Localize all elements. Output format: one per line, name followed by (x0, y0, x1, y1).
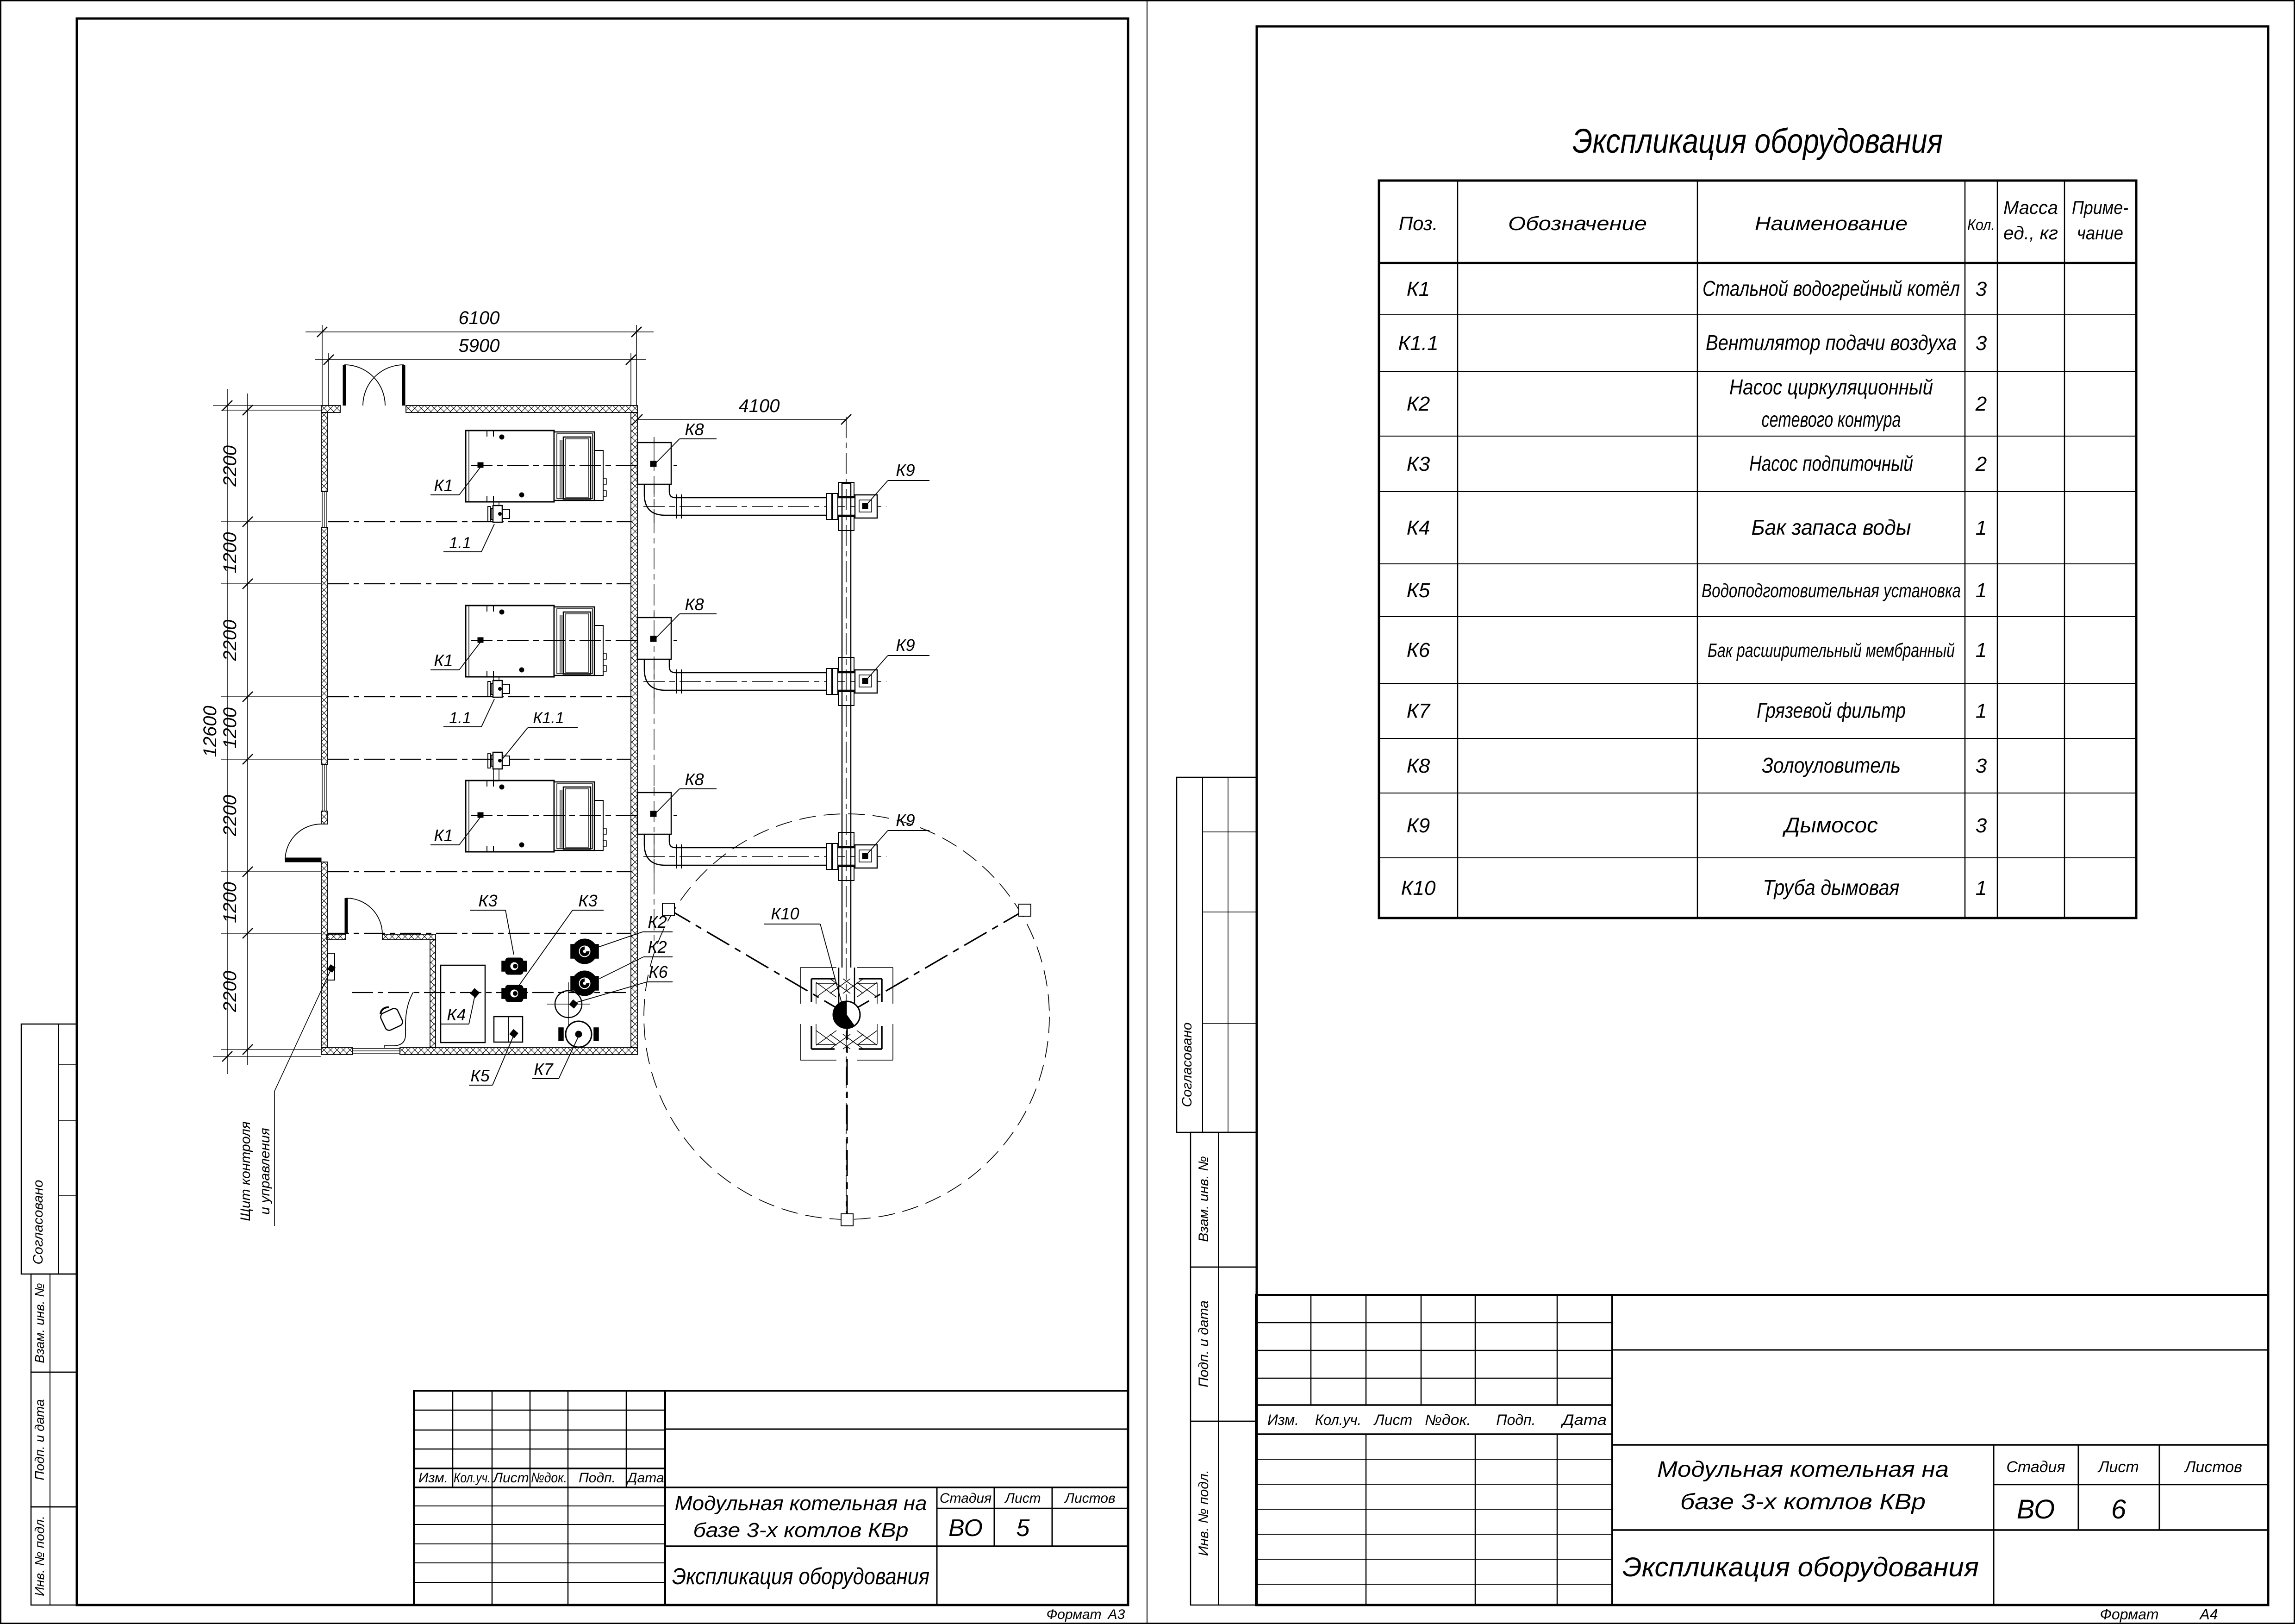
svg-text:Формат: Формат (1046, 1607, 1101, 1622)
svg-text:ВО: ВО (948, 1515, 983, 1542)
svg-text:1.1: 1.1 (449, 534, 471, 552)
svg-text:К10: К10 (1401, 877, 1436, 899)
svg-text:3: 3 (1976, 814, 1987, 837)
svg-text:К4: К4 (447, 1005, 466, 1024)
svg-text:Согласовано: Согласовано (31, 1180, 46, 1265)
svg-text:А4: А4 (2199, 1606, 2218, 1623)
svg-text:Взам. инв. №: Взам. инв. № (32, 1283, 47, 1363)
svg-text:1: 1 (1976, 639, 1987, 662)
svg-text:Экспликация оборудования: Экспликация оборудования (1622, 1552, 1979, 1582)
svg-text:К3: К3 (578, 891, 597, 910)
svg-text:К7: К7 (534, 1060, 554, 1079)
svg-text:Листов: Листов (2184, 1458, 2242, 1476)
svg-text:базе 3-х котлов КВр: базе 3-х котлов КВр (693, 1519, 909, 1542)
svg-text:№док.: №док. (1425, 1412, 1471, 1428)
svg-text:Бак расширительный мембранный: Бак расширительный мембранный (1708, 639, 1955, 661)
svg-text:5900: 5900 (459, 336, 500, 356)
svg-text:6100: 6100 (459, 308, 500, 328)
svg-text:Грязевой фильтр: Грязевой фильтр (1757, 699, 1906, 723)
svg-text:Изм.: Изм. (1267, 1412, 1299, 1428)
svg-text:К8: К8 (1407, 755, 1430, 777)
svg-text:1: 1 (1976, 579, 1987, 602)
svg-text:3: 3 (1976, 278, 1987, 300)
svg-text:К5: К5 (1407, 579, 1430, 602)
svg-text:Подп.: Подп. (579, 1470, 616, 1486)
svg-text:12600: 12600 (200, 706, 220, 757)
svg-text:К2: К2 (1407, 393, 1430, 415)
svg-text:Кол.: Кол. (1967, 216, 1995, 234)
svg-text:2200: 2200 (220, 620, 240, 662)
svg-text:Водоподготовительная установка: Водоподготовительная установка (1702, 580, 1961, 601)
svg-text:1: 1 (1976, 700, 1987, 723)
svg-text:1: 1 (1976, 877, 1987, 899)
svg-text:К3: К3 (478, 891, 497, 910)
svg-text:1: 1 (1976, 517, 1987, 539)
svg-text:базе 3-х котлов КВр: базе 3-х котлов КВр (1680, 1490, 1926, 1514)
svg-text:5: 5 (1017, 1515, 1030, 1542)
svg-text:2200: 2200 (220, 971, 240, 1012)
svg-text:Лист: Лист (2097, 1458, 2139, 1476)
svg-text:Дата: Дата (1561, 1412, 1607, 1428)
svg-text:2: 2 (1975, 453, 1987, 475)
svg-text:К1.1: К1.1 (533, 709, 564, 727)
svg-text:К7: К7 (1407, 700, 1431, 723)
svg-text:№док.: №док. (531, 1470, 567, 1486)
svg-text:2200: 2200 (220, 445, 240, 487)
svg-text:Золоуловитель: Золоуловитель (1762, 753, 1901, 777)
svg-text:Подп.: Подп. (1496, 1412, 1535, 1428)
svg-text:К6: К6 (1407, 639, 1430, 662)
svg-text:Лист: Лист (1004, 1491, 1041, 1506)
svg-text:Насос циркуляционный: Насос циркуляционный (1729, 375, 1933, 399)
svg-text:3: 3 (1976, 332, 1987, 355)
svg-text:сетевого контура: сетевого контура (1762, 407, 1901, 431)
svg-text:ВО: ВО (2017, 1494, 2055, 1524)
svg-text:Изм.: Изм. (418, 1470, 448, 1486)
svg-text:Стадия: Стадия (2006, 1458, 2065, 1476)
svg-text:Инв. № подл.: Инв. № подл. (32, 1516, 47, 1596)
svg-text:Листов: Листов (1064, 1491, 1115, 1506)
svg-text:Подп. и дата: Подп. и дата (1196, 1300, 1211, 1387)
svg-text:К1: К1 (1407, 278, 1430, 300)
svg-text:Модульная котельная на: Модульная котельная на (675, 1492, 927, 1515)
svg-text:Бак запаса воды: Бак запаса воды (1752, 515, 1911, 539)
svg-text:Инв. № подл.: Инв. № подл. (1196, 1470, 1211, 1556)
svg-text:К4: К4 (1407, 517, 1430, 539)
svg-text:Поз.: Поз. (1399, 212, 1438, 234)
svg-text:Лист: Лист (1373, 1412, 1412, 1428)
svg-text:К1.1: К1.1 (1398, 332, 1438, 355)
svg-text:Вентилятор подачи воздуха: Вентилятор подачи воздуха (1706, 331, 1957, 355)
svg-text:Наименование: Наименование (1755, 212, 1908, 234)
svg-text:Приме-: Приме- (2072, 198, 2128, 218)
svg-text:чание: чание (2077, 223, 2123, 244)
svg-text:Масса: Масса (2003, 198, 2058, 218)
svg-text:4100: 4100 (739, 396, 780, 416)
svg-text:2200: 2200 (220, 795, 240, 837)
svg-text:Обозначение: Обозначение (1508, 212, 1647, 234)
svg-text:Лист: Лист (492, 1470, 529, 1486)
svg-text:Экспликация оборудования: Экспликация оборудования (672, 1563, 929, 1589)
svg-text:К5: К5 (470, 1066, 490, 1085)
svg-text:К3: К3 (1407, 453, 1430, 475)
svg-text:1200: 1200 (220, 882, 240, 923)
svg-text:Насос подпиточный: Насос подпиточный (1749, 451, 1913, 475)
svg-text:Взам. инв. №: Взам. инв. № (1196, 1156, 1211, 1242)
svg-text:Согласовано: Согласовано (1179, 1023, 1195, 1107)
svg-text:Щит контроля: Щит контроля (238, 1121, 253, 1221)
svg-text:Кол.уч.: Кол.уч. (454, 1470, 491, 1486)
svg-text:Дата: Дата (626, 1470, 664, 1486)
svg-text:Стадия: Стадия (940, 1491, 992, 1506)
svg-text:К6: К6 (649, 962, 668, 981)
svg-text:К10: К10 (771, 904, 799, 923)
svg-text:и управления: и управления (257, 1128, 273, 1214)
svg-text:1.1: 1.1 (449, 709, 471, 727)
svg-text:ед., кг: ед., кг (2003, 223, 2058, 244)
svg-text:К9: К9 (1407, 814, 1430, 837)
svg-text:2: 2 (1975, 393, 1987, 415)
svg-text:Стальной водогрейный котёл: Стальной водогрейный котёл (1703, 276, 1960, 300)
svg-text:3: 3 (1976, 755, 1987, 777)
svg-text:Труба дымовая: Труба дымовая (1763, 875, 1900, 899)
svg-text:Формат: Формат (2100, 1606, 2158, 1623)
svg-text:Кол.уч.: Кол.уч. (1315, 1412, 1361, 1428)
svg-text:Подп. и дата: Подп. и дата (32, 1399, 47, 1480)
svg-text:К2: К2 (648, 937, 667, 956)
svg-text:А3: А3 (1107, 1607, 1125, 1622)
svg-text:Модульная котельная на: Модульная котельная на (1657, 1457, 1949, 1482)
svg-text:Дымосос: Дымосос (1782, 813, 1878, 837)
svg-text:Экспликация оборудования: Экспликация оборудования (1572, 122, 1943, 160)
svg-text:6: 6 (2111, 1494, 2127, 1524)
svg-text:1200: 1200 (220, 532, 240, 574)
svg-text:1200: 1200 (220, 707, 240, 749)
